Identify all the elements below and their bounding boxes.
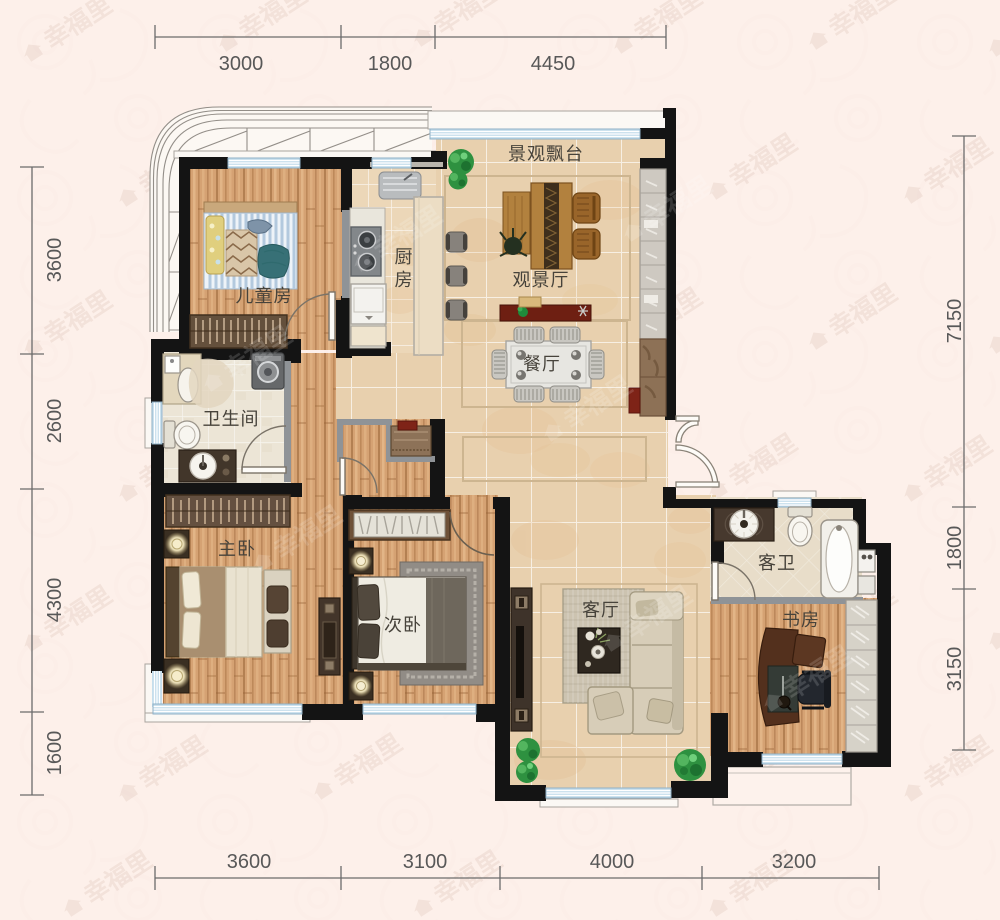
- svg-text:3200: 3200: [772, 851, 817, 873]
- svg-text:书房: 书房: [782, 610, 820, 630]
- svg-text:卫生间: 卫生间: [203, 409, 260, 429]
- svg-text:房: 房: [395, 270, 414, 290]
- svg-text:厨: 厨: [395, 247, 414, 267]
- svg-text:儿童房: 儿童房: [236, 286, 293, 306]
- svg-text:3150: 3150: [944, 647, 966, 692]
- svg-text:客卫: 客卫: [758, 553, 796, 573]
- svg-text:3600: 3600: [227, 851, 272, 873]
- svg-text:2600: 2600: [44, 399, 66, 444]
- svg-text:次卧: 次卧: [384, 615, 422, 635]
- svg-text:餐厅: 餐厅: [523, 354, 561, 374]
- svg-text:主卧: 主卧: [218, 539, 256, 559]
- svg-text:1800: 1800: [944, 526, 966, 571]
- svg-text:4000: 4000: [590, 851, 635, 873]
- svg-text:3100: 3100: [403, 851, 448, 873]
- svg-text:3600: 3600: [44, 238, 66, 283]
- svg-text:4300: 4300: [44, 578, 66, 623]
- svg-text:景观飘台: 景观飘台: [508, 144, 584, 164]
- svg-text:1600: 1600: [44, 731, 66, 776]
- svg-text:4450: 4450: [531, 53, 576, 75]
- svg-text:客厅: 客厅: [582, 600, 620, 620]
- svg-text:1800: 1800: [368, 53, 413, 75]
- svg-text:3000: 3000: [219, 53, 264, 75]
- svg-text:7150: 7150: [944, 299, 966, 344]
- svg-text:观景厅: 观景厅: [513, 270, 570, 290]
